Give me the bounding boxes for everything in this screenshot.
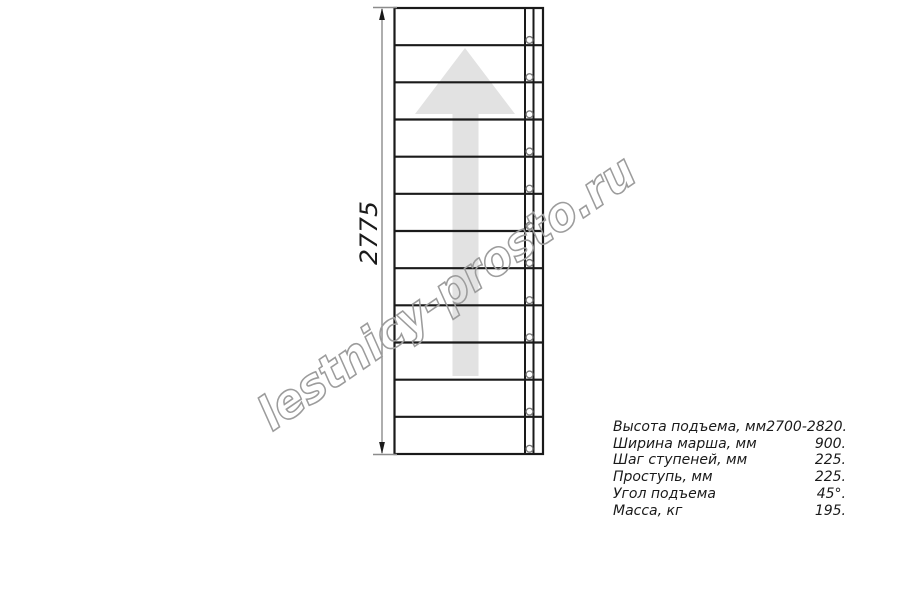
- spec-label: Угол подъема: [613, 486, 716, 503]
- site-watermark: lestnicy-prosto.ru: [248, 144, 647, 442]
- spec-label: Ширина марша, мм: [613, 436, 757, 453]
- baluster-hole-circle: [526, 74, 533, 81]
- spec-value: 900.: [815, 436, 846, 453]
- dimension-arrow-down: [379, 442, 385, 454]
- spec-row-tread: Проступь, мм 225.: [613, 469, 846, 486]
- spec-row-width: Ширина марша, мм 900.: [613, 436, 846, 453]
- spec-row-height: Высота подъема, мм 2700-2820.: [613, 419, 846, 436]
- baluster-hole-circle: [526, 371, 533, 378]
- spec-label: Высота подъема, мм: [613, 419, 766, 436]
- spec-label: Проступь, мм: [613, 469, 713, 486]
- spec-row-angle: Угол подъема 45°.: [613, 486, 846, 503]
- spec-row-mass: Масса, кг 195.: [613, 503, 846, 520]
- spec-value: 225.: [815, 469, 846, 486]
- baluster-hole-circle: [526, 185, 533, 192]
- baluster-hole-circle: [526, 148, 533, 155]
- baluster-hole-circle: [526, 445, 533, 452]
- spec-table: Высота подъема, мм 2700-2820. Ширина мар…: [613, 419, 846, 519]
- baluster-hole-circle: [526, 111, 533, 118]
- dimension-arrow-up: [379, 8, 385, 20]
- spec-value: 45°.: [817, 486, 846, 503]
- spec-label: Масса, кг: [613, 503, 682, 520]
- dimension-2775: 2775: [355, 8, 397, 455]
- dimension-label: 2775: [355, 201, 383, 265]
- baluster-hole-circle: [526, 37, 533, 44]
- baluster-hole-circle: [526, 334, 533, 341]
- spec-label: Шаг ступеней, мм: [613, 452, 747, 469]
- baluster-hole-circle: [526, 297, 533, 304]
- spec-value: 195.: [815, 503, 846, 520]
- spec-value: 225.: [815, 452, 846, 469]
- baluster-hole-circle: [526, 408, 533, 415]
- spec-row-step-pitch: Шаг ступеней, мм 225.: [613, 452, 846, 469]
- spec-value: 2700-2820.: [766, 419, 847, 436]
